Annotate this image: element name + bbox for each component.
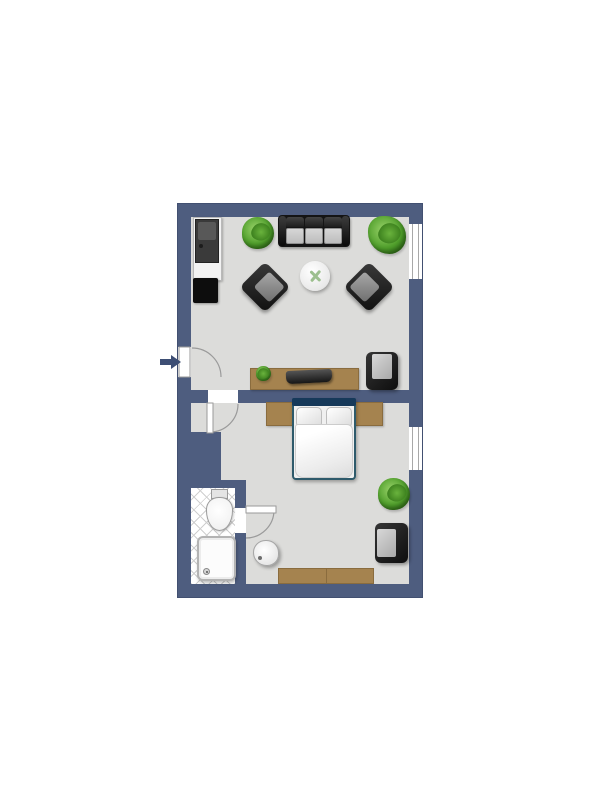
- appliance-handle: [199, 244, 203, 248]
- table-plant: [306, 267, 324, 285]
- bathroom-right-wall-lower: [235, 533, 246, 584]
- bedroom-door-opening: [208, 390, 238, 403]
- sideboard-plant: [256, 366, 271, 381]
- sofa-armrest-left: [279, 216, 286, 246]
- bedroom-window: [409, 427, 422, 470]
- wall-block-left: [191, 432, 221, 480]
- chair-seat: [349, 271, 380, 302]
- sofa-back-cushion: [305, 217, 323, 227]
- tv: [286, 369, 333, 384]
- potted-plant-living-left: [242, 217, 274, 249]
- bathroom-door-opening: [235, 508, 246, 533]
- living-room-window: [409, 224, 422, 279]
- bedroom-dresser: [278, 568, 374, 584]
- refrigerator-appliance: [195, 219, 219, 263]
- arrow-head: [171, 355, 181, 369]
- three-seat-sofa: [278, 215, 350, 247]
- appliance-top: [198, 222, 216, 240]
- floor-plan: [178, 204, 422, 597]
- potted-plant-bedroom: [378, 478, 410, 510]
- bedroom-armchair: [375, 523, 408, 563]
- chair-seat: [377, 529, 396, 557]
- sofa-seat-cushion: [286, 228, 304, 244]
- shower-tray: [197, 536, 236, 581]
- bathroom-right-wall-upper: [235, 488, 246, 508]
- sofa-armrest-right: [342, 216, 349, 246]
- sofa-back-cushion: [286, 217, 304, 227]
- duvet: [295, 424, 353, 478]
- sofa-back-cushion: [324, 217, 342, 227]
- entry-arrow-icon: [160, 355, 182, 369]
- bathroom-top-wall: [191, 480, 246, 488]
- sofa-seat-cushion: [324, 228, 342, 244]
- wash-basin: [253, 540, 279, 566]
- bed-headboard: [292, 398, 356, 406]
- sofa-seat-cushion: [305, 228, 323, 244]
- living-room-armchair: [366, 352, 398, 390]
- cooktop: [193, 278, 218, 303]
- chair-seat: [372, 354, 392, 379]
- shower-drain: [203, 568, 210, 575]
